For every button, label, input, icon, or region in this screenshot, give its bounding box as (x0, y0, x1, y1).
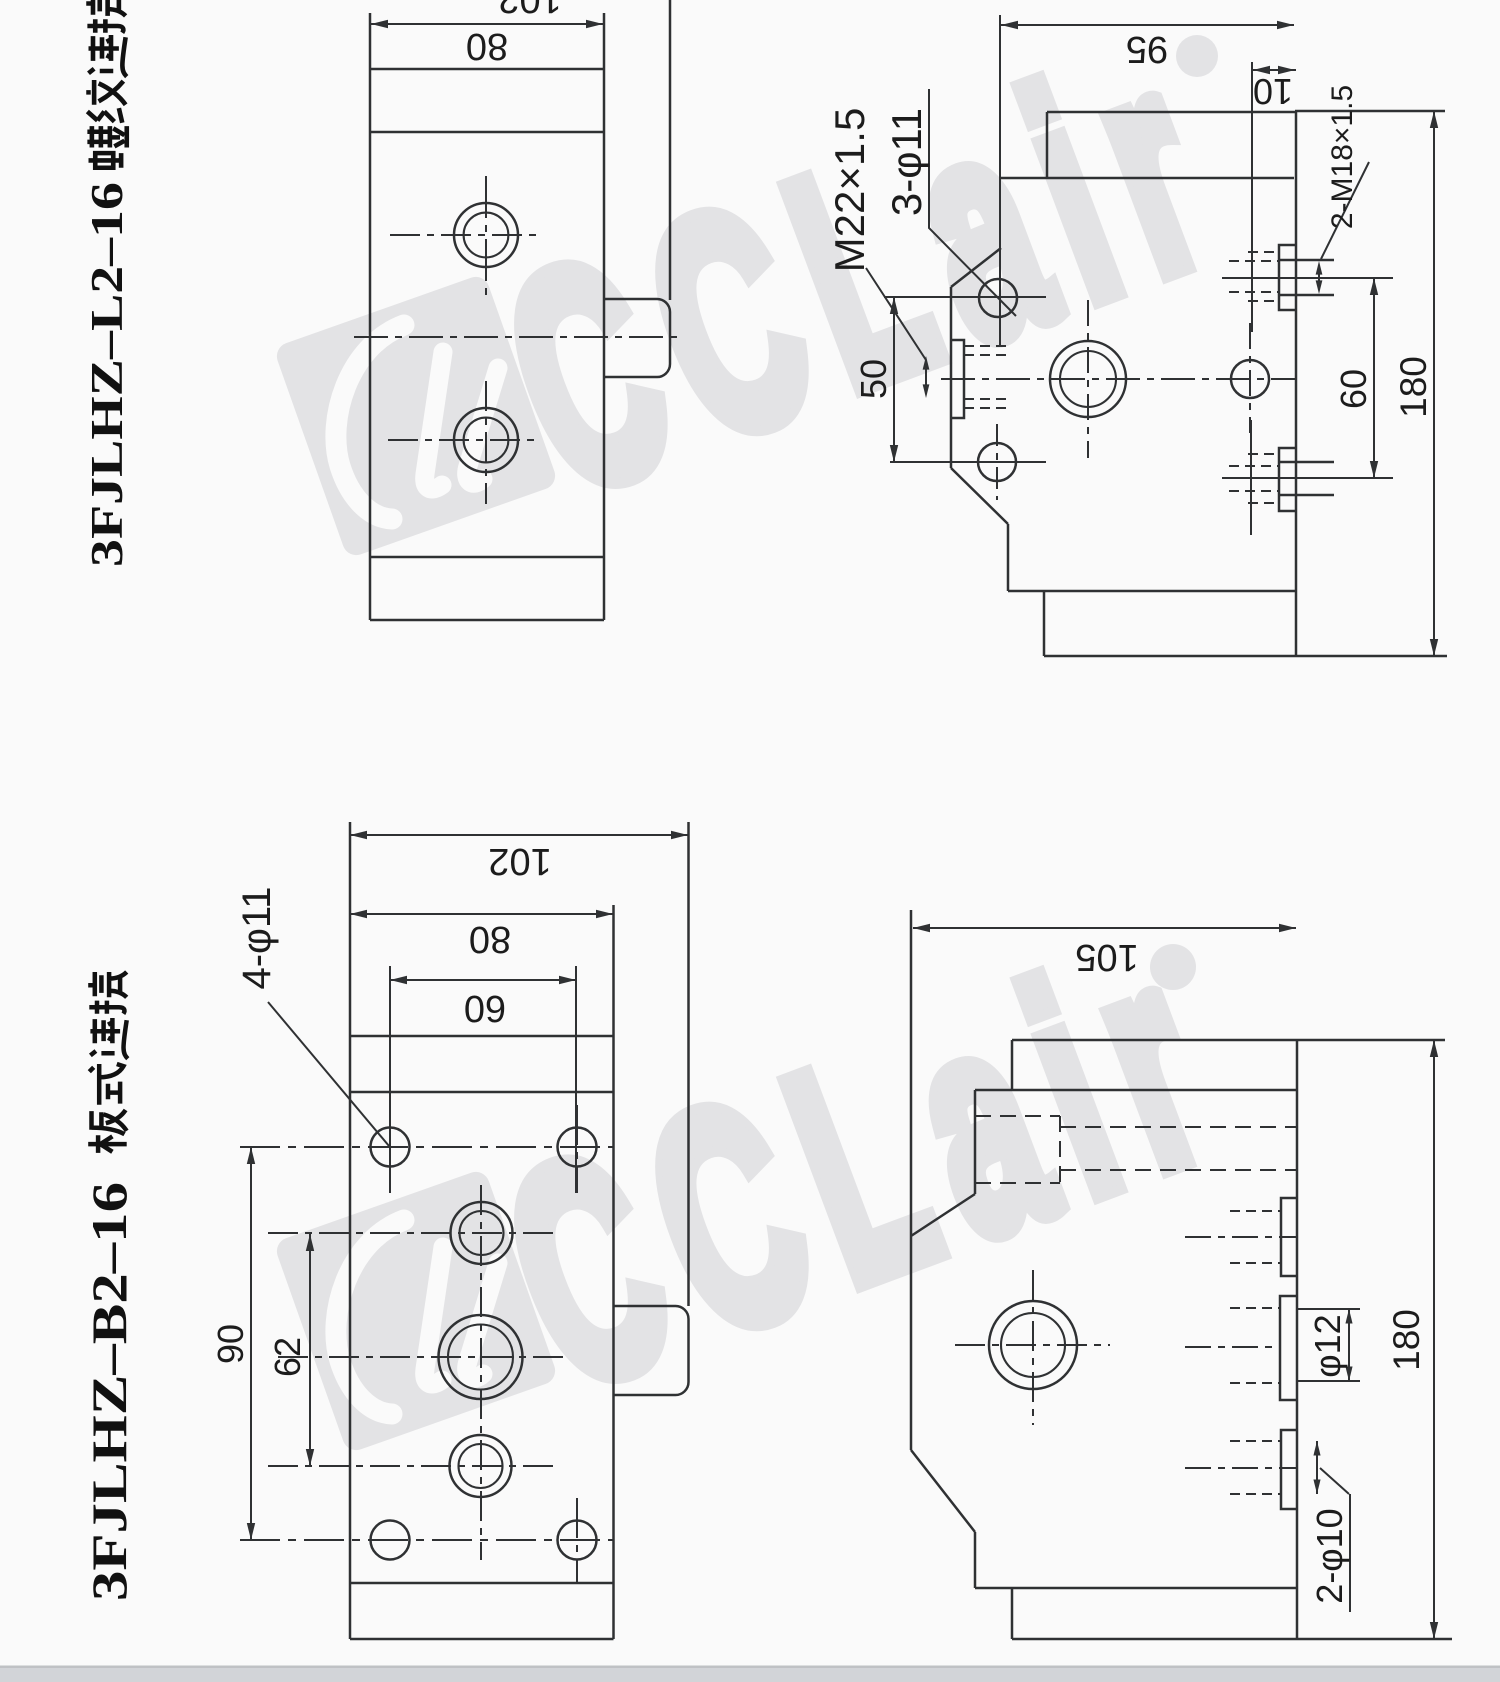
svg-text:102: 102 (488, 840, 551, 882)
svg-text:80: 80 (466, 25, 508, 67)
svg-text:80: 80 (469, 918, 511, 960)
svg-text:M22×1.5: M22×1.5 (826, 108, 873, 273)
svg-text:180: 180 (1386, 1309, 1427, 1371)
svg-text:2-φ10: 2-φ10 (1309, 1508, 1350, 1603)
svg-text:50: 50 (853, 359, 894, 399)
svg-text:180: 180 (1393, 356, 1434, 418)
svg-text:60: 60 (1333, 369, 1374, 409)
svg-text:3FJLHZ–L2–16: 3FJLHZ–L2–16 (81, 182, 132, 567)
svg-text:φ12: φ12 (1307, 1314, 1348, 1377)
svg-text:10: 10 (1253, 71, 1293, 112)
svg-text:62: 62 (267, 1337, 308, 1377)
svg-text:60: 60 (464, 987, 506, 1029)
svg-text:4-φ11: 4-φ11 (235, 886, 279, 989)
svg-text:3-φ11: 3-φ11 (883, 108, 930, 216)
svg-text:105: 105 (1075, 936, 1138, 978)
svg-text:95: 95 (1126, 28, 1168, 70)
svg-text:102: 102 (498, 0, 561, 20)
svg-text:3FJLHZ–B2–16: 3FJLHZ–B2–16 (81, 1182, 137, 1601)
svg-text:2-M18×1.5: 2-M18×1.5 (1326, 85, 1359, 229)
svg-text:90: 90 (210, 1324, 251, 1364)
